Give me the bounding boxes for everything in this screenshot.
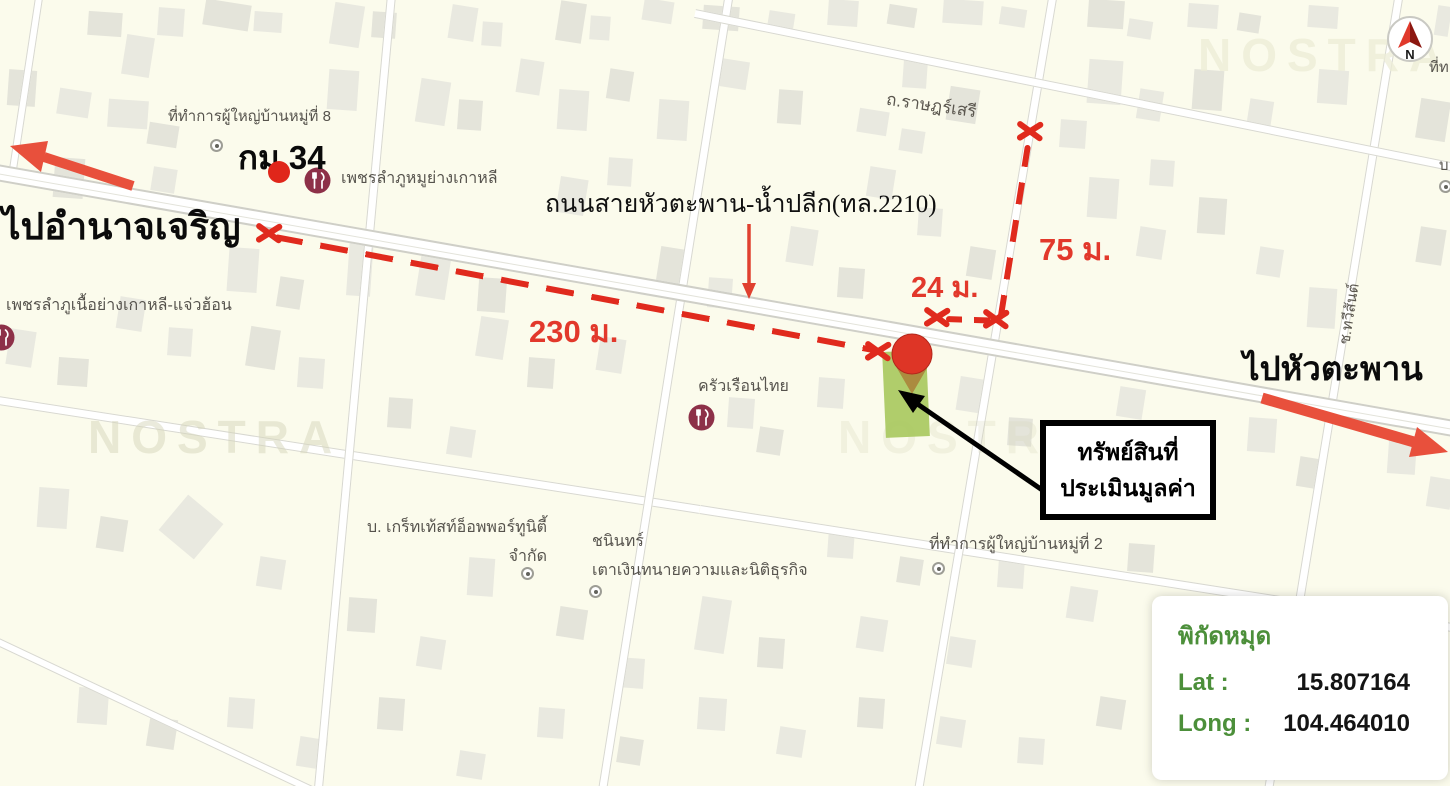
property-pin-icon (889, 333, 935, 395)
map-building (416, 636, 446, 670)
measure-dash-75m (997, 145, 1031, 324)
map-building (556, 606, 588, 640)
map-building (37, 487, 70, 529)
svg-text:N: N (1405, 47, 1414, 62)
map-building (253, 11, 282, 33)
lat-value: 15.807164 (1297, 669, 1410, 697)
km34-red-dot (268, 161, 290, 183)
map-building (150, 166, 177, 193)
destination-left-label: ไปอำนาจเจริญ (2, 197, 241, 256)
distance-230m-label: 230 ม. (529, 306, 618, 356)
map-building (387, 397, 413, 429)
map-building (1415, 226, 1446, 266)
destination-right-label: ไปหัวตะพาน (1243, 342, 1423, 395)
map-building (456, 750, 486, 780)
map-building (1187, 3, 1219, 29)
map-building (1017, 737, 1045, 765)
map-building (1116, 386, 1146, 420)
poi-label-company: บ. เกร็ทเท้สท์อ็อพพอร์ทูนิตี้ จำกัด (345, 513, 547, 571)
map-building (657, 99, 690, 141)
map-building (56, 88, 92, 119)
map-building (727, 397, 755, 429)
map-building (776, 726, 806, 758)
restaurant-icon (0, 324, 15, 351)
map-building (377, 697, 405, 731)
measure-x-mark (864, 337, 892, 365)
map-building (515, 58, 544, 95)
map-building (887, 4, 918, 28)
map-building (1387, 437, 1417, 475)
poi-label-restaurant1: เพชรลำภูหมูย่างเกาหลี (341, 169, 498, 189)
map-building (936, 716, 966, 748)
long-label: Long : (1178, 710, 1251, 738)
longitude-row: Long : 104.464010 (1178, 710, 1448, 738)
coordinates-panel: พิกัดหมุด Lat : 15.807164 Long : 104.464… (1152, 596, 1448, 780)
map-building (896, 556, 924, 585)
map-building (245, 326, 281, 370)
map-building (898, 128, 925, 153)
map-building (202, 0, 252, 31)
map-building (256, 556, 286, 590)
road-label-pointer-arrow (742, 224, 756, 299)
map-building (1087, 177, 1120, 219)
map-building (1087, 0, 1125, 29)
map-building (694, 596, 732, 654)
map-building (607, 157, 633, 187)
map-building (942, 0, 984, 25)
map-building (589, 15, 611, 40)
map-watermark: NOSTRA (88, 410, 342, 464)
map-building (537, 707, 565, 739)
map-building (1426, 476, 1450, 509)
map-building (475, 316, 509, 360)
callout-line1: ทรัพย์สินที่ (1077, 434, 1178, 470)
map-building (446, 426, 476, 458)
map-building (448, 4, 479, 42)
map-building (57, 357, 89, 387)
map-building (785, 226, 818, 266)
map-building (1247, 417, 1277, 453)
map-building (837, 267, 865, 299)
map-building (827, 0, 859, 27)
map-building (606, 68, 634, 101)
map-building (157, 7, 185, 37)
map-building (1197, 197, 1227, 235)
map-building (1136, 226, 1166, 260)
map-building (777, 89, 803, 125)
long-value: 104.464010 (1283, 710, 1410, 738)
map-building (415, 78, 452, 126)
map-building (1066, 586, 1099, 622)
map-building (1307, 5, 1338, 29)
map-building (527, 357, 555, 389)
poi-label-edge-right: บ (1439, 156, 1449, 176)
poi-dot-edge-right (1439, 180, 1450, 193)
map-building (327, 69, 360, 111)
poi-dot-village2 (932, 562, 945, 575)
map-building (1127, 543, 1155, 573)
poi-lawyer-line1: ชนินทร์ (592, 527, 808, 556)
map-building (121, 34, 155, 78)
poi-dot-village8 (210, 139, 223, 152)
map-building (697, 697, 727, 731)
map-building (347, 597, 377, 633)
street-road (0, 635, 337, 786)
map-building (856, 616, 889, 652)
poi-dot-lawyer (589, 585, 602, 598)
poi-dot-company (521, 567, 534, 580)
map-building (557, 89, 590, 131)
map-building (159, 495, 224, 560)
map-building (817, 377, 845, 409)
map-building (481, 21, 503, 46)
map-canvas: NOSTRA NOSTRA NOSTRA ที่ทำการผู้ใหญ่บ้าน… (0, 0, 1450, 786)
map-building (167, 327, 193, 357)
distance-75m-label: 75 ม. (1039, 224, 1111, 274)
map-building (1307, 287, 1338, 329)
map-building (757, 637, 785, 669)
measure-x-mark (1016, 117, 1044, 145)
map-building (641, 0, 674, 24)
map-building (87, 11, 123, 37)
map-building (1256, 246, 1284, 277)
map-building (1059, 119, 1087, 149)
poi-company-line1: บ. เกร็ทเท้สท์อ็อพพอร์ทูนิตี้ (345, 513, 547, 542)
map-building (107, 99, 149, 130)
map-building (999, 6, 1027, 28)
map-building (946, 636, 976, 668)
poi-label-restaurant2: เพชรลำภูเนื้อย่างเกาหลี-แจ่วฮ้อน (6, 296, 232, 316)
distance-24m-label: 24 ม. (911, 264, 979, 310)
main-road-label: ถนนสายหัวตะพาน-น้ำปลีก(ทล.2210) (545, 184, 937, 224)
map-building (329, 2, 365, 48)
map-building (457, 99, 483, 131)
callout-line2: ประเมินมูลค่า (1060, 470, 1196, 506)
map-building (276, 276, 304, 309)
map-building (1149, 159, 1175, 187)
coordinates-title: พิกัดหมุด (1178, 616, 1448, 655)
map-building (1127, 18, 1154, 40)
map-building (96, 516, 129, 552)
property-callout-box: ทรัพย์สินที่ ประเมินมูลค่า (1040, 420, 1216, 520)
latitude-row: Lat : 15.807164 (1178, 669, 1448, 697)
map-building (297, 357, 325, 389)
restaurant-icon (688, 404, 715, 431)
poi-lawyer-line2: เตาเงินทนายความและนิติธุรกิจ (592, 556, 808, 585)
map-building (756, 426, 784, 455)
map-building (555, 0, 587, 44)
measure-x-mark (255, 219, 283, 247)
poi-label-restaurant3: ครัวเรือนไทย (698, 377, 789, 397)
map-building (616, 736, 644, 765)
map-building (857, 697, 885, 729)
map-building (1096, 696, 1126, 730)
poi-label-lawyer: ชนินทร์ เตาเงินทนายความและนิติธุรกิจ (592, 527, 808, 585)
map-building (1415, 98, 1450, 142)
compass-north-icon: N (1386, 15, 1434, 63)
poi-label-village2: ที่ทำการผู้ใหญ่บ้านหมู่ที่ 2 (929, 535, 1103, 555)
measure-x-mark (982, 305, 1010, 333)
map-building (227, 697, 255, 729)
poi-label-village8: ที่ทำการผู้ใหญ่บ้านหมู่ที่ 8 (168, 107, 331, 127)
lat-label: Lat : (1178, 669, 1229, 697)
poi-company-line2: จำกัด (345, 542, 547, 571)
